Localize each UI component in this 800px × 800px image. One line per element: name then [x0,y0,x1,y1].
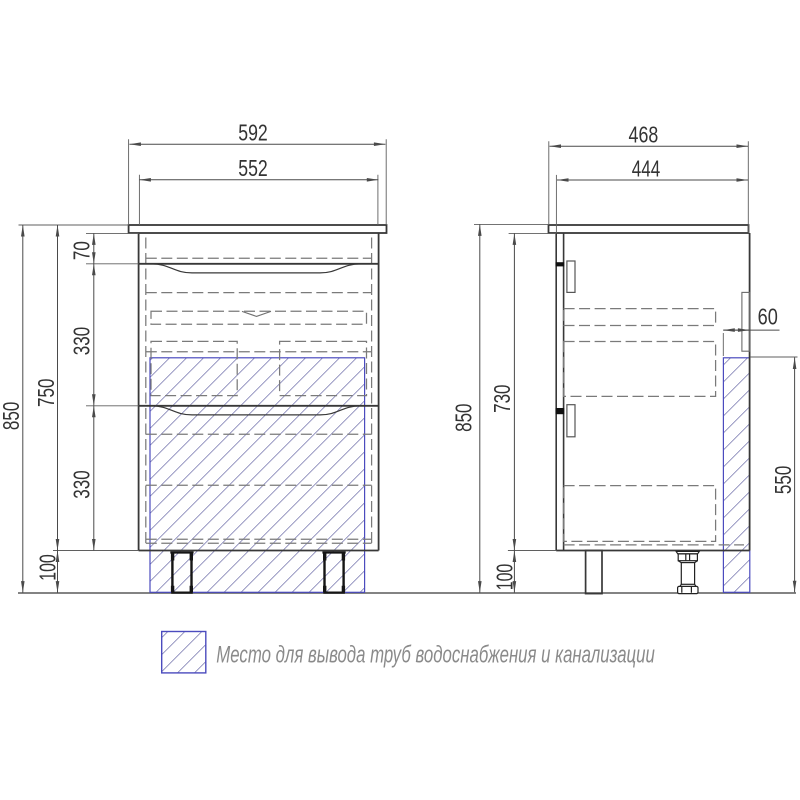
svg-text:330: 330 [69,327,95,355]
svg-text:444: 444 [632,155,661,181]
svg-text:330: 330 [69,470,95,498]
svg-text:60: 60 [758,303,778,329]
svg-text:468: 468 [629,122,659,148]
svg-text:70: 70 [68,241,94,260]
svg-text:100: 100 [35,554,61,581]
svg-text:Место для вывода труб водоснаб: Место для вывода труб водоснабжения и ка… [216,642,655,669]
svg-text:592: 592 [238,120,268,146]
svg-text:100: 100 [491,564,517,591]
svg-text:552: 552 [238,155,268,181]
svg-text:750: 750 [33,379,59,407]
svg-text:850: 850 [0,402,24,430]
svg-text:850: 850 [451,404,477,432]
svg-text:730: 730 [489,385,515,413]
svg-text:550: 550 [770,466,796,494]
